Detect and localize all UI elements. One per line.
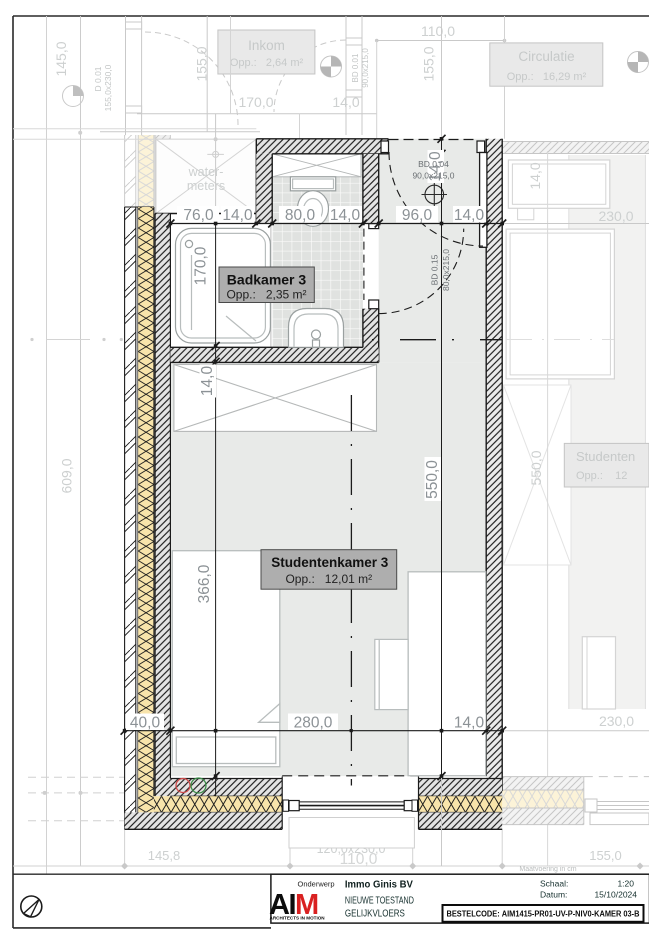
svg-text:170,0: 170,0 bbox=[238, 94, 273, 110]
svg-text:230,0: 230,0 bbox=[598, 208, 633, 224]
svg-text:1:20: 1:20 bbox=[617, 879, 634, 889]
svg-text:110,0: 110,0 bbox=[421, 23, 455, 39]
svg-text:Opp.: 2,64 m²: Opp.: 2,64 m² bbox=[230, 57, 304, 69]
svg-text:110,0: 110,0 bbox=[340, 851, 378, 868]
svg-text:Opp.: 12,01 m²: Opp.: 12,01 m² bbox=[285, 572, 372, 586]
svg-text:366,0: 366,0 bbox=[196, 564, 213, 603]
svg-text:Schaal:: Schaal: bbox=[540, 879, 568, 889]
svg-text:Onderwerp: Onderwerp bbox=[298, 880, 335, 889]
svg-text:D 0.01: D 0.01 bbox=[93, 66, 103, 91]
svg-text:80,0: 80,0 bbox=[285, 207, 316, 224]
svg-text:Datum:: Datum: bbox=[540, 890, 567, 900]
svg-text:155,0: 155,0 bbox=[421, 46, 437, 81]
svg-text:280,0: 280,0 bbox=[294, 715, 333, 732]
svg-text:Opp.: 16,29 m²: Opp.: 16,29 m² bbox=[507, 71, 587, 83]
svg-text:14,0: 14,0 bbox=[330, 207, 361, 224]
svg-text:Studentenkamer 3: Studentenkamer 3 bbox=[271, 555, 389, 570]
svg-text:145,0: 145,0 bbox=[53, 41, 69, 76]
svg-text:BD 0.04: BD 0.04 bbox=[418, 159, 449, 169]
svg-text:BD 0.01: BD 0.01 bbox=[351, 53, 360, 82]
svg-text:230,0: 230,0 bbox=[599, 713, 634, 729]
svg-text:Badkamer 3: Badkamer 3 bbox=[227, 272, 307, 288]
svg-text:14,0: 14,0 bbox=[199, 366, 216, 397]
svg-text:NIEUWE TOESTAND: NIEUWE TOESTAND bbox=[345, 895, 414, 907]
svg-text:Opp.: 2,35 m²: Opp.: 2,35 m² bbox=[226, 288, 306, 302]
svg-text:BESTELCODE: AIM1415-PR01-UV-P-: BESTELCODE: AIM1415-PR01-UV-P-NIV0-KAMER… bbox=[447, 910, 640, 919]
svg-text:Maatvoering in cm: Maatvoering in cm bbox=[519, 866, 576, 873]
svg-text:90,0x215,0: 90,0x215,0 bbox=[412, 171, 454, 181]
svg-text:meters: meters bbox=[187, 179, 225, 193]
svg-text:14,0: 14,0 bbox=[332, 94, 359, 110]
svg-text:15/10/2024: 15/10/2024 bbox=[594, 890, 637, 900]
svg-text:80,0x215,0: 80,0x215,0 bbox=[441, 249, 451, 291]
svg-text:Inkom: Inkom bbox=[248, 38, 285, 53]
svg-text:BD 0.15: BD 0.15 bbox=[430, 254, 440, 285]
svg-text:96,0: 96,0 bbox=[402, 207, 433, 224]
svg-text:40,0: 40,0 bbox=[130, 715, 161, 732]
svg-text:GELIJKVLOERS: GELIJKVLOERS bbox=[345, 908, 405, 920]
svg-text:76,0: 76,0 bbox=[183, 207, 214, 224]
svg-text:550,0: 550,0 bbox=[528, 450, 544, 485]
svg-text:14,0: 14,0 bbox=[527, 162, 543, 189]
svg-text:155,0: 155,0 bbox=[194, 46, 210, 81]
svg-text:609,0: 609,0 bbox=[59, 458, 75, 493]
svg-text:water-: water- bbox=[188, 165, 224, 179]
svg-text:90,0x215,0: 90,0x215,0 bbox=[361, 48, 370, 88]
svg-text:Opp.: 12: Opp.: 12 bbox=[576, 470, 627, 482]
svg-text:Circulatie: Circulatie bbox=[518, 49, 574, 64]
svg-text:14,0: 14,0 bbox=[454, 715, 485, 732]
svg-text:155,0: 155,0 bbox=[589, 848, 622, 863]
svg-text:ARCHITECTS IN MOTION: ARCHITECTS IN MOTION bbox=[270, 916, 326, 921]
svg-text:550,0: 550,0 bbox=[424, 460, 441, 499]
svg-text:Studenten: Studenten bbox=[576, 449, 635, 464]
svg-text:14,0: 14,0 bbox=[454, 207, 485, 224]
svg-text:145,8: 145,8 bbox=[148, 848, 181, 863]
svg-text:155,0x230,0: 155,0x230,0 bbox=[103, 64, 113, 111]
svg-text:14,0: 14,0 bbox=[222, 207, 253, 224]
svg-text:Immo Ginis BV: Immo Ginis BV bbox=[345, 880, 413, 891]
svg-text:170,0: 170,0 bbox=[193, 246, 210, 285]
